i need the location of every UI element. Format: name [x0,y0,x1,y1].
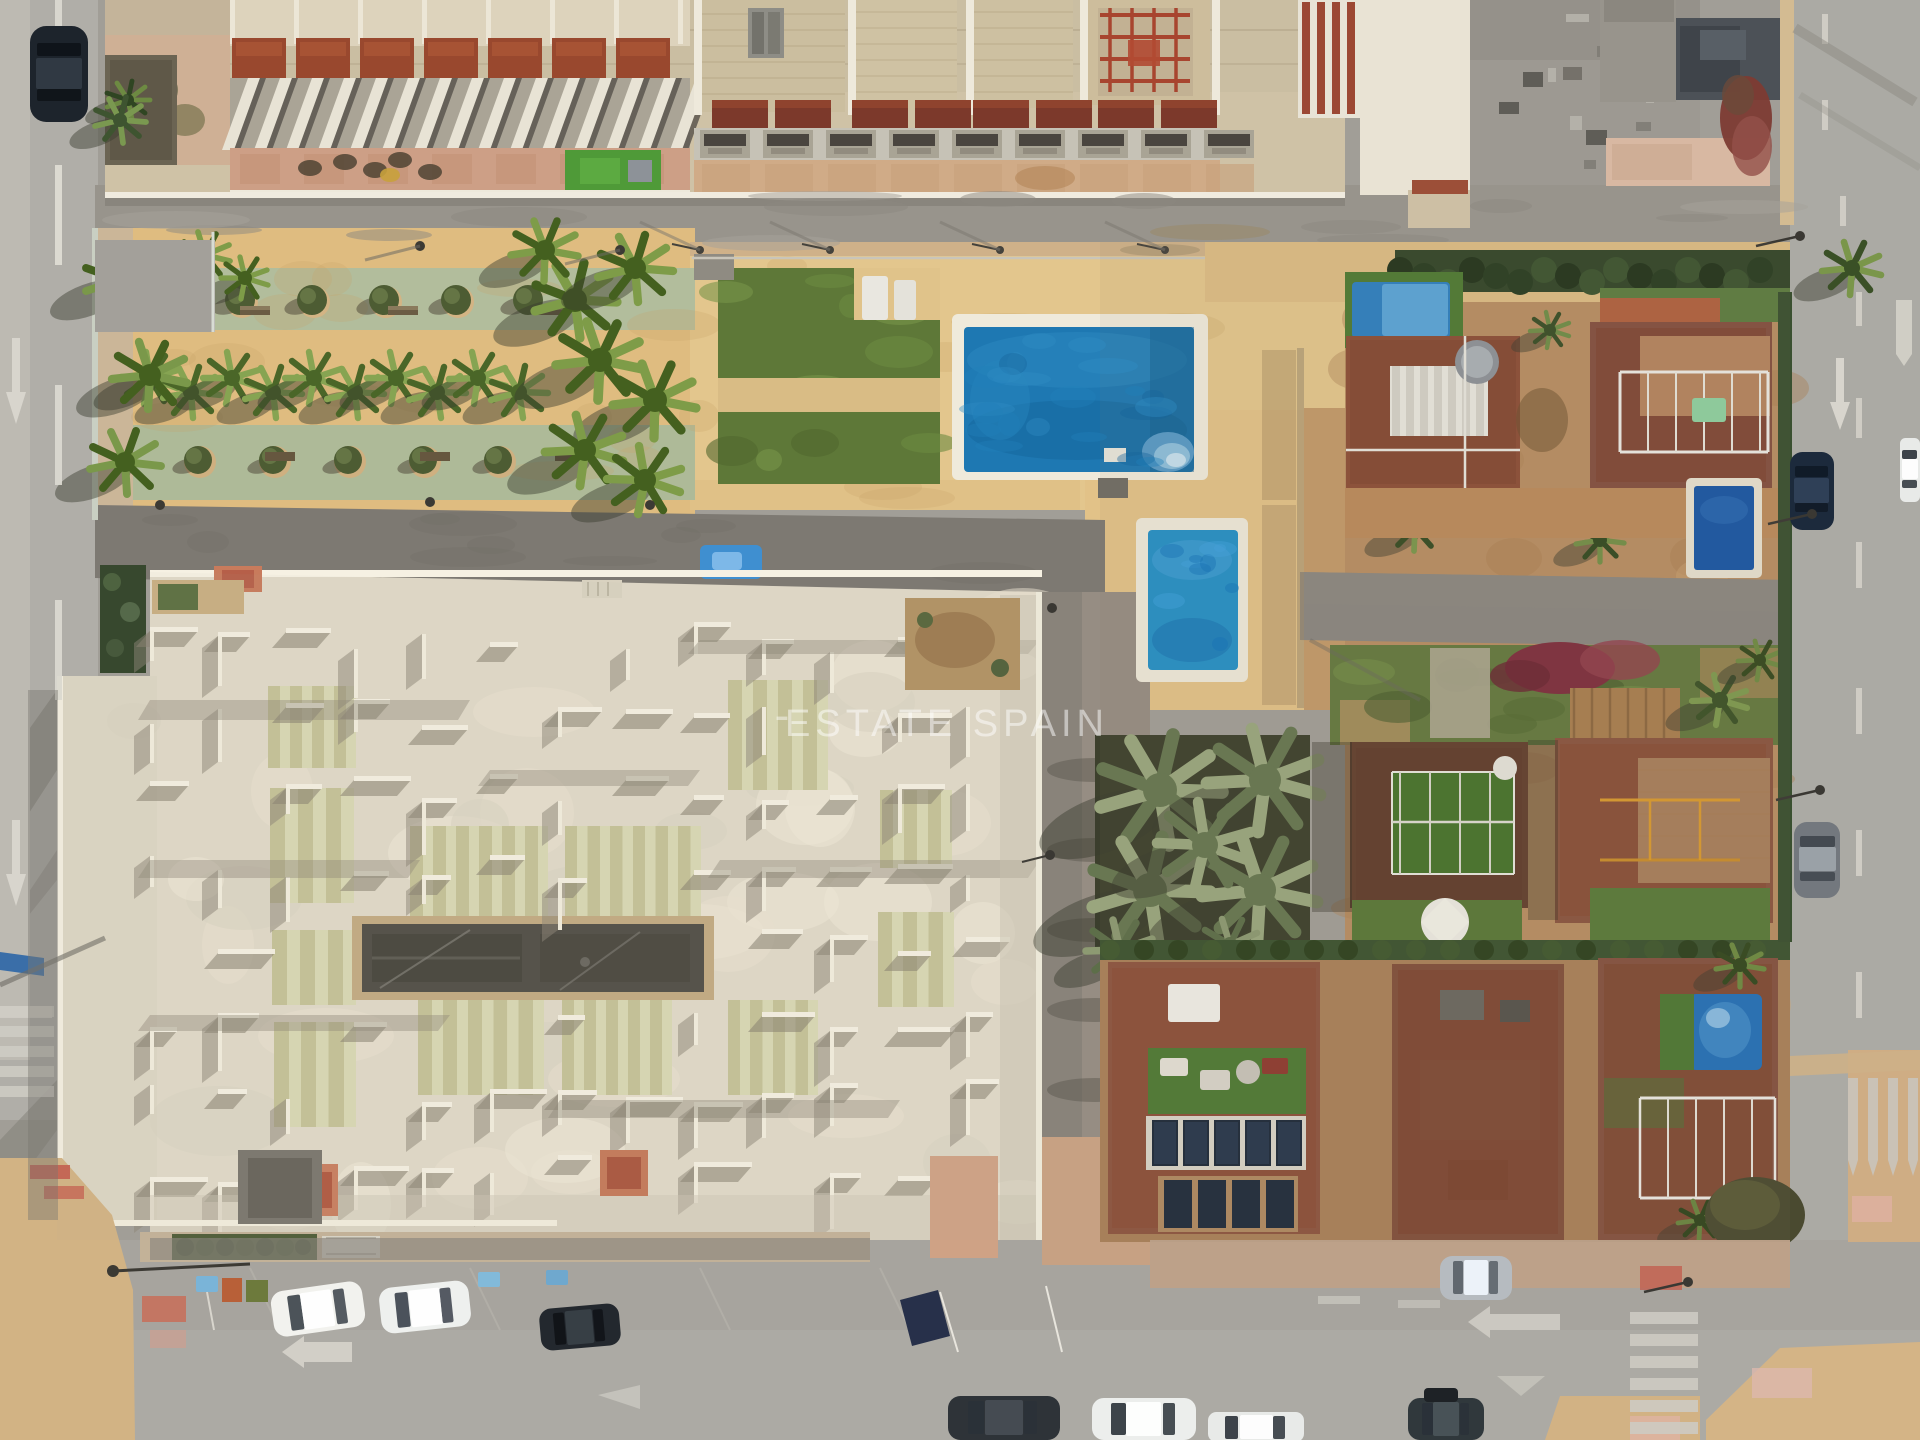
svg-text:ESTATE SPAIN: ESTATE SPAIN [785,703,1109,745]
svg-text:-: - [775,691,790,740]
